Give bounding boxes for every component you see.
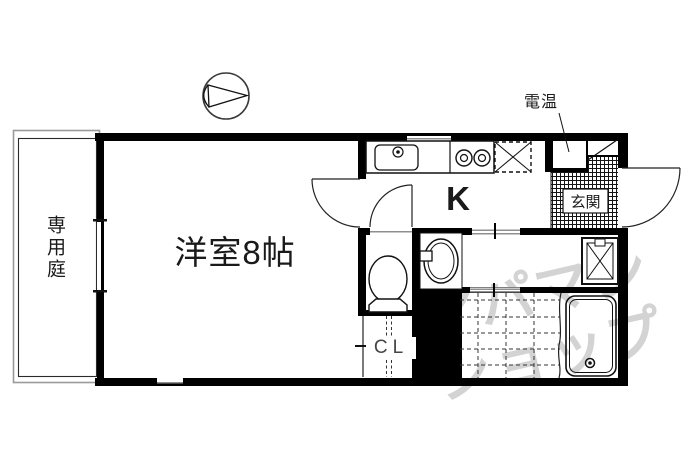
door-toilet	[370, 185, 412, 227]
heater-leader-line	[559, 113, 569, 152]
north-compass-icon	[203, 73, 249, 119]
door-entrance	[622, 168, 680, 227]
room-label: 洋室8帖	[148, 226, 322, 274]
kitchen-sink-icon	[375, 145, 418, 170]
door-room	[312, 179, 360, 227]
bathtub-icon	[566, 296, 616, 376]
bath-tile-floor	[460, 293, 560, 378]
washbasin-icon	[420, 233, 462, 289]
kitchen-label: K	[436, 180, 480, 218]
window-garden	[93, 219, 107, 293]
sliding-door-washroom	[472, 223, 520, 239]
floorplan-drawing	[0, 0, 690, 460]
entrance-label: 玄関	[563, 191, 608, 212]
window-bottom	[157, 378, 183, 384]
floorplan-canvas: アパマン ショップ	[0, 0, 690, 460]
garden-label: 専用庭	[41, 215, 68, 281]
closet-label: CL	[366, 337, 416, 359]
water-heater-label: 電温	[524, 88, 558, 112]
refrigerator-space-icon	[495, 142, 531, 172]
kitchen-counter	[366, 141, 494, 173]
toilet-icon	[369, 256, 407, 312]
washing-machine-pan-icon	[582, 238, 618, 284]
